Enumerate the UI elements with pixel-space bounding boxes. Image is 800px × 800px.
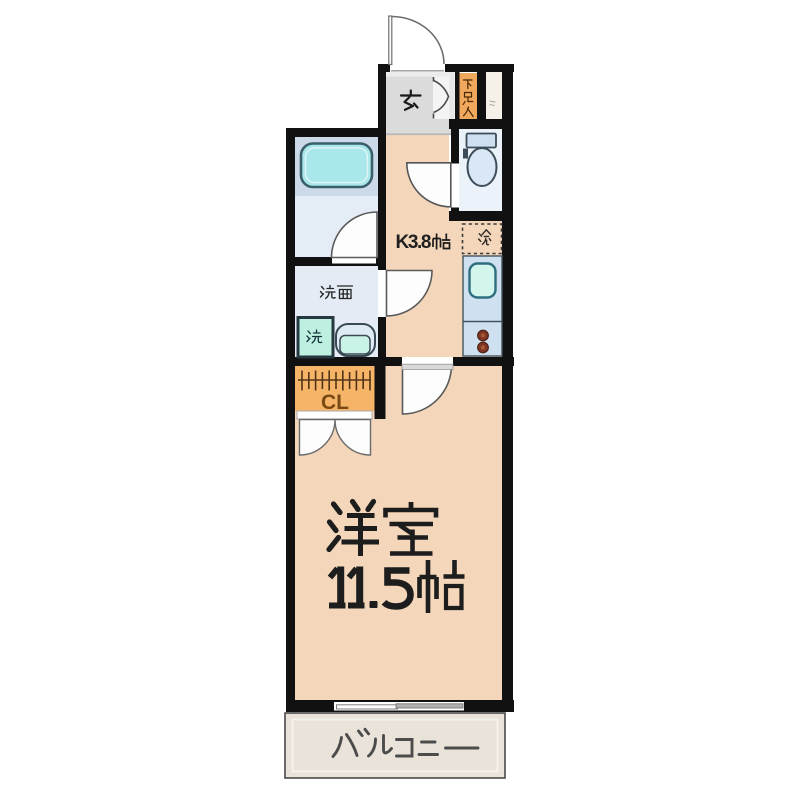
svg-text:K3.8: K3.8	[396, 232, 431, 253]
